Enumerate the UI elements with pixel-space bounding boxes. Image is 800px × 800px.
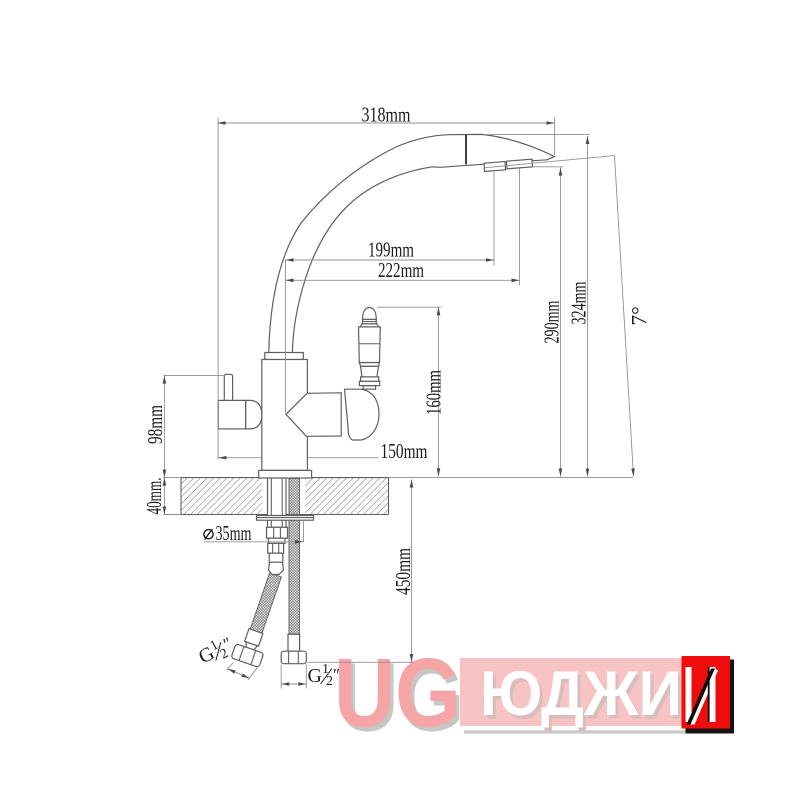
svg-text:35mm: 35mm [216, 521, 252, 545]
svg-text:324mm: 324mm [567, 281, 591, 324]
svg-text:G: G [308, 665, 322, 687]
svg-text:UG: UG [334, 638, 461, 747]
svg-text:40mm.: 40mm. [142, 478, 166, 515]
svg-text:450mm: 450mm [391, 548, 415, 595]
svg-text:222mm: 222mm [378, 258, 424, 282]
svg-text:318mm: 318mm [362, 103, 411, 127]
svg-text:160mm: 160mm [422, 370, 446, 415]
svg-text:7°: 7° [627, 306, 651, 325]
svg-text:″: ″ [333, 665, 340, 684]
svg-text:150mm: 150mm [381, 439, 428, 463]
svg-text:290mm: 290mm [540, 300, 564, 343]
svg-text:ЮДЖИ: ЮДЖИ [480, 659, 682, 729]
svg-text:2: 2 [326, 674, 333, 689]
svg-text:98mm: 98mm [143, 405, 167, 444]
